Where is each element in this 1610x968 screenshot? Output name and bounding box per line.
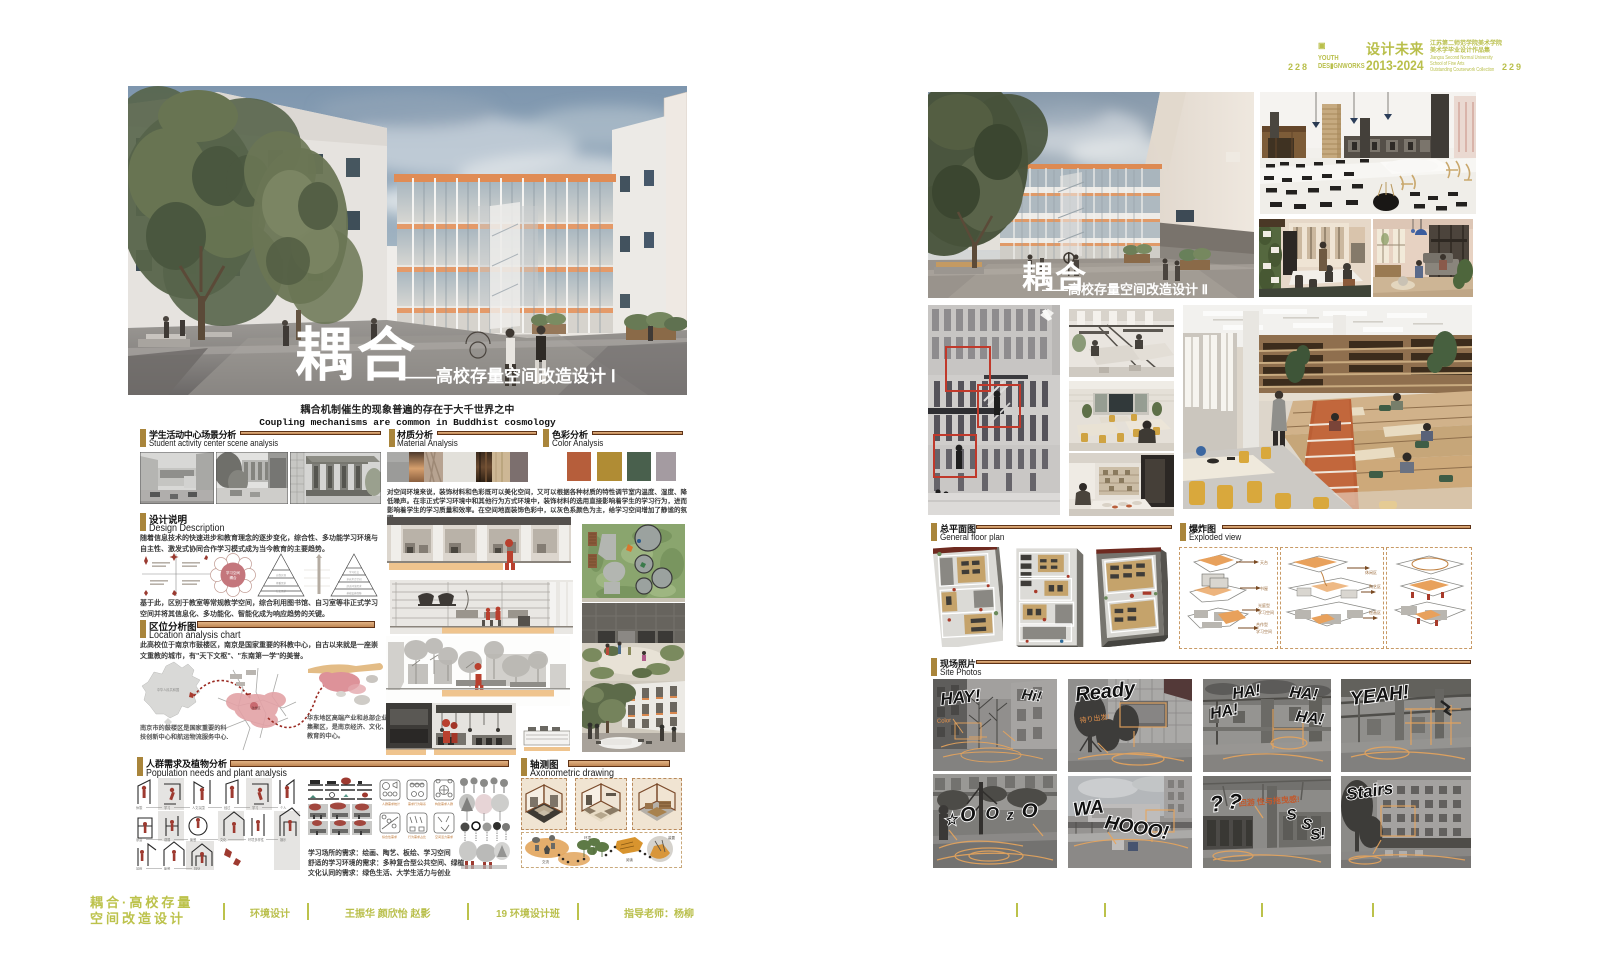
svg-text:HA!: HA! (1289, 684, 1320, 704)
svg-text:环境多样性: 环境多样性 (248, 837, 265, 842)
svg-text:S!: S! (1309, 825, 1326, 844)
svg-text:社交需求: 社交需求 (276, 589, 287, 593)
svg-text:自我实现: 自我实现 (276, 573, 287, 577)
svg-text:人群需求统计: 人群需求统计 (382, 801, 400, 806)
svg-text:学习社交: 学习社交 (349, 570, 360, 574)
svg-text:绘画区: 绘画区 (1369, 609, 1381, 615)
svg-text:WA: WA (1072, 796, 1105, 821)
svg-text:装置: 装置 (668, 835, 676, 840)
svg-text:Hi!: Hi! (1020, 686, 1042, 706)
svg-text:个人: 个人 (280, 806, 287, 810)
svg-text:基础设施保障: 基础设施保障 (346, 591, 362, 595)
svg-text:教育的中心。: 教育的中心。 (306, 732, 344, 740)
svg-text:中华人民共和国: 中华人民共和国 (157, 687, 179, 692)
svg-text:交流: 交流 (542, 859, 550, 864)
svg-text:Color: Color (937, 718, 952, 725)
svg-text:行为需求占比: 行为需求占比 (408, 834, 426, 839)
svg-text:尊重需求: 尊重需求 (276, 581, 287, 585)
svg-text:聚餐: 聚餐 (190, 837, 197, 842)
svg-text:构建需求人群: 构建需求人群 (435, 801, 453, 806)
svg-text:O: O (985, 803, 1000, 823)
svg-text:文化: 文化 (220, 837, 227, 842)
svg-text:技创新中心和航运物流服务中心.: 技创新中心和航运物流服务中心. (140, 733, 229, 741)
svg-text:舒适环境需求: 舒适环境需求 (346, 584, 362, 588)
svg-text:华东地区高端产业和总部企业: 华东地区高端产业和总部企业 (307, 714, 386, 722)
svg-text:学习空间: 学习空间 (1258, 609, 1274, 615)
svg-text:环境: 环境 (584, 835, 592, 840)
svg-text:z: z (1005, 806, 1015, 823)
svg-text:天台: 天台 (1260, 559, 1268, 565)
svg-text:学习空间: 学习空间 (1256, 628, 1272, 634)
svg-text:休憩: 休憩 (136, 805, 143, 810)
svg-text:耦合: 耦合 (230, 575, 237, 580)
svg-text:观展: 观展 (164, 837, 171, 842)
svg-text:综合性需求: 综合性需求 (382, 834, 397, 839)
svg-text:独处: 独处 (194, 866, 201, 870)
svg-text:娱乐: 娱乐 (280, 837, 287, 842)
svg-text:阅读: 阅读 (626, 857, 634, 862)
svg-text:光庭型: 光庭型 (1258, 602, 1270, 608)
svg-text:鼓楼区: 鼓楼区 (251, 705, 260, 710)
svg-text:聚餐: 聚餐 (164, 866, 171, 870)
svg-text:多元复合空间: 多元复合空间 (346, 577, 362, 581)
svg-text:需求行为联系: 需求行为联系 (408, 801, 426, 806)
svg-text:学习: 学习 (164, 805, 170, 810)
svg-text:经过: 经过 (224, 805, 231, 810)
svg-text:南京市的鼓楼区是国家重要的科: 南京市的鼓楼区是国家重要的科 (140, 724, 227, 732)
svg-text:休闲区: 休闲区 (1365, 569, 1377, 575)
svg-text:晨练: 晨练 (136, 866, 143, 870)
svg-text:人文氛围: 人文氛围 (192, 805, 205, 810)
svg-text:合作型: 合作型 (1256, 621, 1268, 627)
svg-text:空间活力需求: 空间活力需求 (435, 834, 453, 839)
svg-text:书屋: 书屋 (1260, 585, 1268, 591)
svg-text:S: S (1286, 806, 1298, 824)
svg-text:参会: 参会 (136, 837, 143, 842)
svg-text:集聚区，是南京经济、文化、: 集聚区，是南京经济、文化、 (306, 723, 386, 731)
svg-text:学习: 学习 (252, 805, 258, 810)
svg-text:学习空间: 学习空间 (226, 570, 240, 575)
svg-text:陶艺区: 陶艺区 (1369, 583, 1381, 589)
